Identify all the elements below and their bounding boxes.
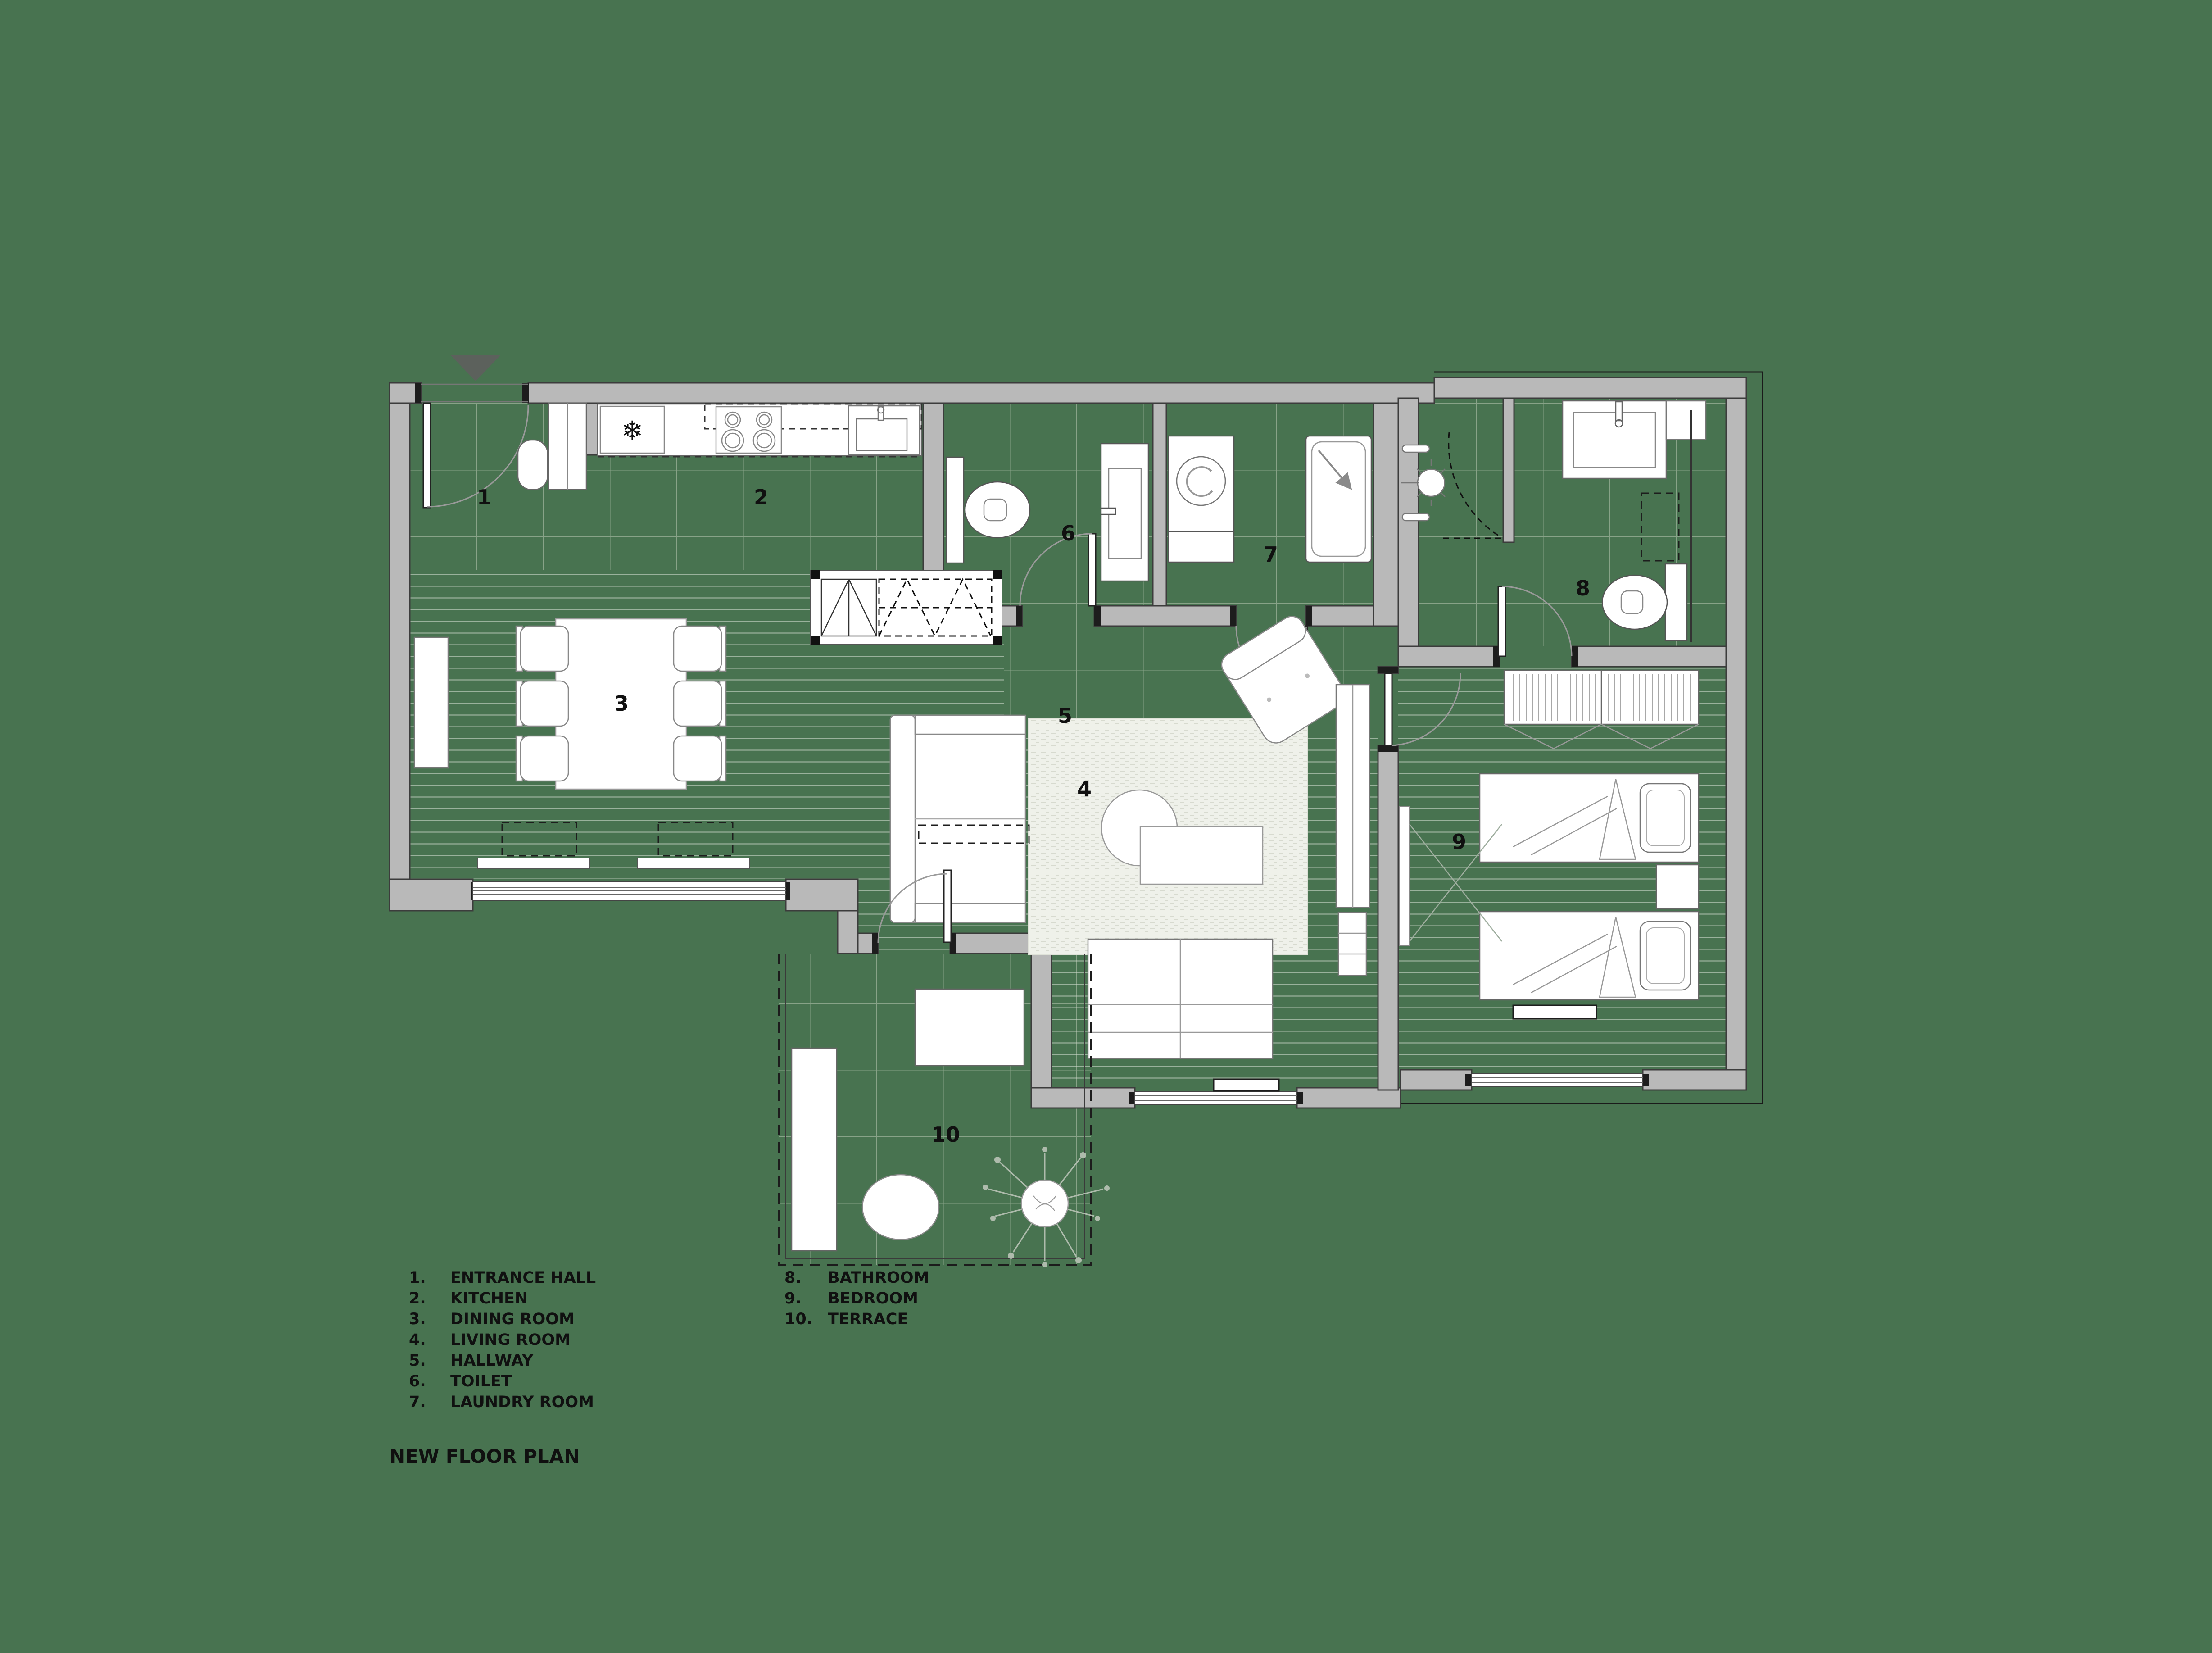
- pillow: [1640, 922, 1691, 990]
- entrance-threshold: [421, 384, 528, 402]
- bathroom-door-leaf: [1498, 586, 1505, 656]
- room-label-laundry-room: 7: [1264, 542, 1278, 567]
- terrace-bench: [792, 1048, 837, 1251]
- hall-wardrobe-unit: [811, 570, 1002, 645]
- bed-2: [1480, 912, 1699, 1000]
- pillow: [1640, 784, 1691, 852]
- room-label-kitchen: 2: [754, 485, 768, 509]
- toilet-cistern: [947, 457, 964, 563]
- kitchen: ❄: [598, 404, 921, 457]
- legend-number: 3.: [409, 1310, 426, 1328]
- legend-item-bathroom: BATHROOM: [828, 1269, 929, 1287]
- kitchen-sink: [848, 406, 920, 454]
- floor-plan-drawing: ❄: [0, 0, 2212, 1653]
- wall-top-main: [528, 383, 1434, 403]
- wall-bedroom-left: [1378, 745, 1398, 1090]
- floor-plan-sheet: ❄: [0, 0, 2212, 1653]
- nightstand: [1656, 865, 1699, 909]
- legend-number: 1.: [409, 1269, 426, 1287]
- tv-cabinet: [1336, 685, 1369, 976]
- wall-living-bottom-right: [1297, 1088, 1401, 1108]
- wall-toilet-laundry-divider: [1153, 403, 1166, 606]
- room-label-living-room: 4: [1077, 777, 1092, 801]
- room-label-terrace: 10: [931, 1122, 960, 1147]
- bed-1: [1480, 774, 1699, 862]
- wall-entrance-stub: [586, 403, 598, 455]
- legend-item-bedroom: BEDROOM: [828, 1290, 918, 1308]
- legend-item-dining-room: DINING ROOM: [450, 1310, 575, 1328]
- legend-number: 4.: [409, 1331, 426, 1349]
- bedroom-bench: [1513, 1005, 1596, 1019]
- legend-number: 6.: [409, 1372, 426, 1390]
- legend-number: 2.: [409, 1290, 426, 1308]
- coffee-table-rect: [1140, 826, 1263, 884]
- legend-number: 7.: [409, 1393, 426, 1411]
- legend-number: 10.: [784, 1310, 812, 1328]
- legend-item-kitchen: KITCHEN: [450, 1290, 528, 1308]
- legend: 1. ENTRANCE HALL 2. KITCHEN 3. DINING RO…: [390, 1269, 929, 1467]
- wall-bedroom-bottom-left: [1401, 1070, 1472, 1090]
- wall-step-vertical: [838, 911, 858, 954]
- wall-bathroom-bottom-left: [1398, 646, 1500, 667]
- wall-dining-bottom-right: [786, 879, 858, 911]
- entrance-door-leaf: [423, 403, 431, 508]
- wall-bathroom-bottom-right: [1572, 646, 1726, 667]
- terrace-door-leaf: [944, 870, 951, 942]
- bedroom-door-leaf: [1385, 673, 1392, 745]
- window-sill-right: [637, 858, 750, 869]
- bedroom-wall-shelf: [1400, 806, 1410, 946]
- toilet-bowl: [965, 482, 1030, 538]
- room-label-hallway: 5: [1058, 704, 1072, 728]
- laundry-shower: [1306, 436, 1371, 562]
- wall-top-right-block: [1434, 377, 1746, 398]
- bathroom-corner-shelf: [1666, 401, 1706, 440]
- wall-dining-bottom-left: [390, 879, 473, 911]
- room-label-toilet: 6: [1061, 521, 1075, 545]
- wall-living-left: [1031, 954, 1052, 1108]
- legend-item-terrace: TERRACE: [828, 1310, 908, 1328]
- room-label-bedroom: 9: [1452, 830, 1466, 854]
- fridge: ❄: [600, 406, 664, 453]
- legend-item-laundry-room: LAUNDRY ROOM: [450, 1393, 594, 1411]
- room-label-entrance-hall: 1: [477, 485, 491, 509]
- room-label-dining-room: 3: [614, 691, 629, 716]
- sofa: [890, 715, 1025, 922]
- toilet-sink: [1101, 444, 1148, 581]
- terrace-table: [915, 989, 1024, 1066]
- wall-right: [1726, 398, 1746, 1070]
- legend-item-entrance-hall: ENTRANCE HALL: [450, 1269, 596, 1287]
- legend-column-2: 8. BATHROOM 9. BEDROOM 10. TERRACE: [784, 1269, 929, 1328]
- wall-bedroom-bottom-right: [1643, 1070, 1746, 1090]
- wall-shower-partition: [1503, 398, 1514, 542]
- dining-window: [473, 881, 786, 900]
- legend-item-toilet: TOILET: [450, 1372, 512, 1390]
- room-label-bathroom: 8: [1576, 576, 1590, 600]
- living-window-sill: [1214, 1079, 1279, 1091]
- legend-column-1: 1. ENTRANCE HALL 2. KITCHEN 3. DINING RO…: [409, 1269, 596, 1411]
- snowflake-icon: ❄: [621, 415, 644, 446]
- legend-item-living-room: LIVING ROOM: [450, 1331, 571, 1349]
- shoe-cabinet: [518, 440, 548, 490]
- terrace-pouf: [862, 1175, 939, 1240]
- wall-toilet-block-bottom-2: [1094, 606, 1236, 626]
- window-sill-left: [477, 858, 590, 869]
- wall-living-bottom-left: [1031, 1088, 1135, 1108]
- wall-left: [390, 403, 410, 911]
- media-cabinet: [1088, 939, 1273, 1058]
- bedroom-window: [1472, 1074, 1643, 1086]
- legend-number: 9.: [784, 1290, 802, 1308]
- legend-item-hallway: HALLWAY: [450, 1352, 534, 1370]
- wall-bathroom-left: [1398, 398, 1419, 667]
- wall-laundry-right: [1373, 403, 1398, 626]
- stove: [716, 407, 781, 453]
- legend-number: 5.: [409, 1352, 426, 1370]
- legend-number: 8.: [784, 1269, 802, 1287]
- entrance-marker-icon: [450, 355, 501, 381]
- page-title: NEW FLOOR PLAN: [390, 1445, 580, 1467]
- toilet-door-leaf: [1088, 534, 1096, 606]
- washing-machine: [1169, 436, 1234, 562]
